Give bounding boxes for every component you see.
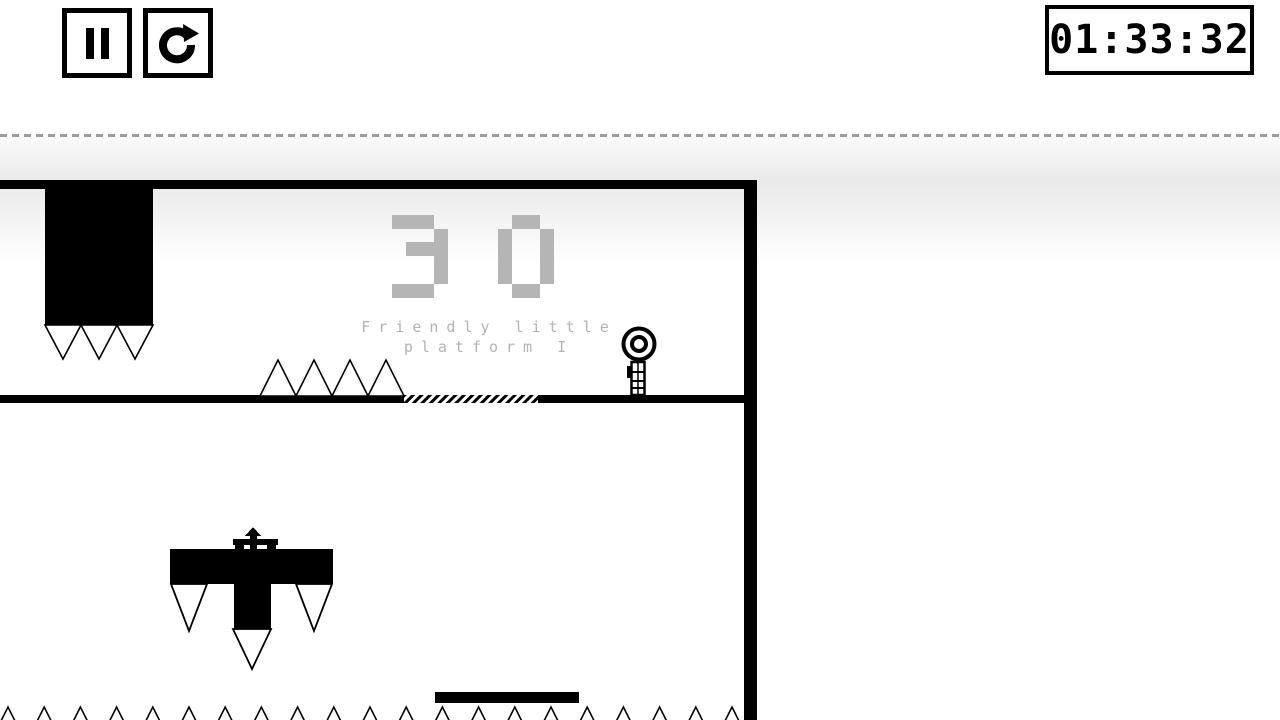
level-number [392, 215, 562, 299]
ceiling-spikes [45, 325, 153, 359]
t-shaped-hazard [170, 527, 333, 669]
game-canvas[interactable] [0, 0, 1280, 720]
level-title-line2: platform I [339, 337, 639, 357]
floor-spikes [0, 707, 740, 720]
hazard-emblem-icon [233, 527, 278, 551]
platform-spikes [260, 360, 404, 396]
game-screen: 01:33:32 [0, 0, 1280, 720]
crumbling-platform-section [404, 395, 538, 403]
floating-platform [435, 692, 579, 703]
level-title-line1: Friendly little [339, 317, 639, 337]
hanging-block [45, 184, 153, 325]
right-wall [744, 180, 757, 720]
level-title: Friendly little platform I [339, 317, 639, 357]
